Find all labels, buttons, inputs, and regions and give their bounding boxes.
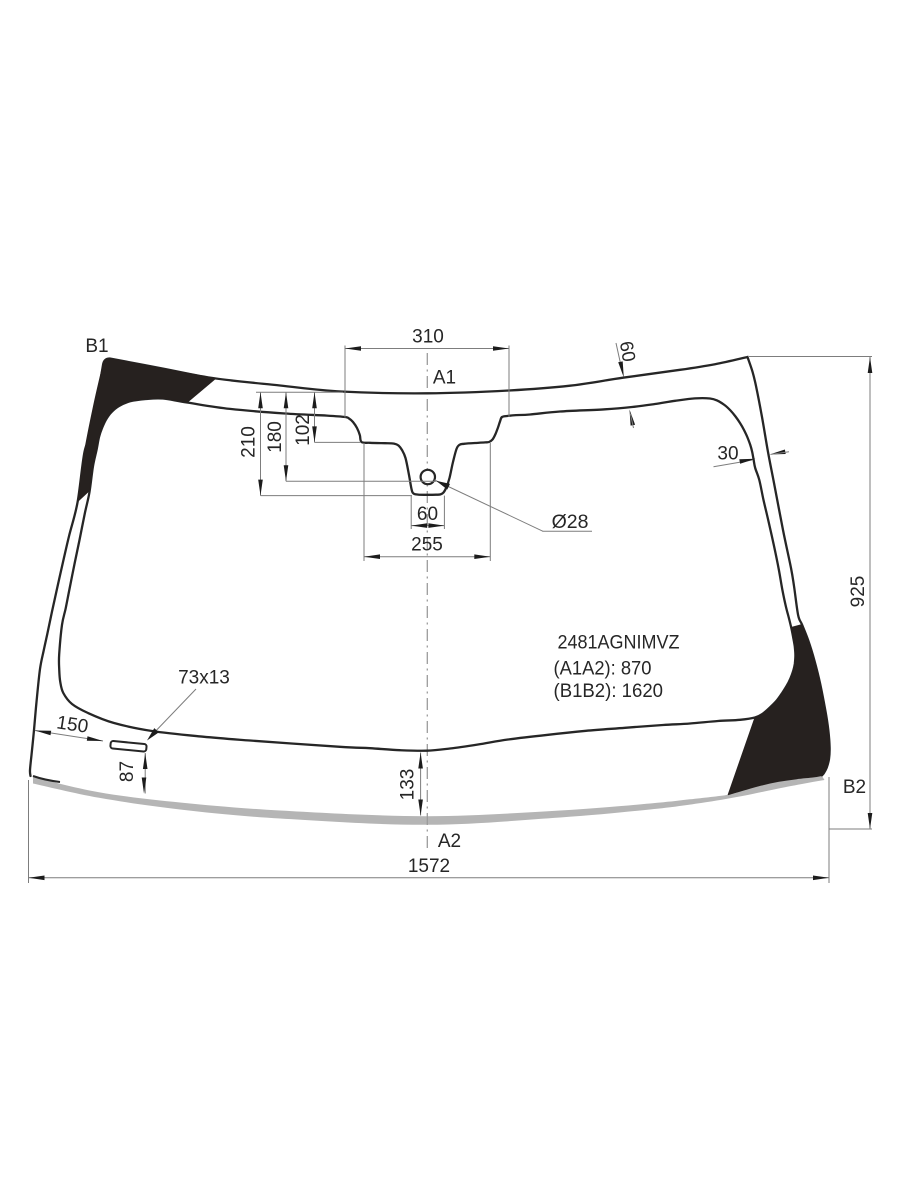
svg-text:133: 133 [398,769,419,801]
svg-text:60: 60 [417,504,438,525]
svg-text:87: 87 [117,761,138,782]
svg-text:A1: A1 [433,368,456,389]
svg-text:B1: B1 [85,336,108,357]
svg-text:(B1B2): 1620: (B1B2): 1620 [554,681,664,702]
svg-text:73x13: 73x13 [178,668,230,689]
svg-text:Ø28: Ø28 [552,511,589,533]
svg-text:925: 925 [848,576,869,608]
svg-text:102: 102 [293,414,314,446]
svg-text:180: 180 [265,421,286,453]
svg-text:B2: B2 [843,777,866,798]
svg-text:A2: A2 [438,831,461,852]
svg-text:210: 210 [239,426,260,458]
svg-text:(A1A2): 870: (A1A2): 870 [554,659,652,680]
svg-text:255: 255 [411,535,443,556]
svg-text:30: 30 [717,444,738,465]
svg-text:1572: 1572 [408,856,450,877]
svg-text:2481AGNIMVZ: 2481AGNIMVZ [558,633,680,654]
svg-text:60: 60 [616,339,640,363]
svg-text:310: 310 [412,327,444,348]
